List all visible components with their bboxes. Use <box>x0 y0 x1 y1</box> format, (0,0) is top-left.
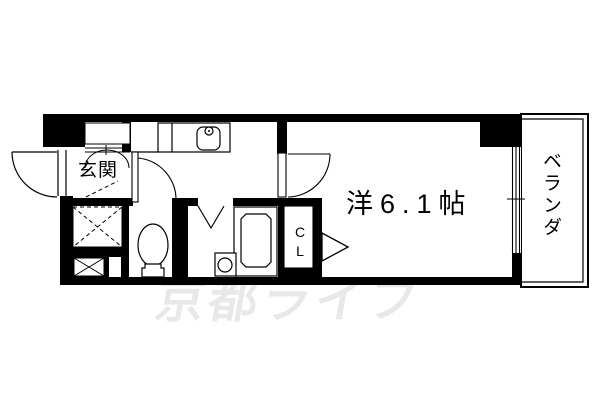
wall-window-pillar <box>512 253 521 285</box>
washbasin-icon <box>215 253 236 276</box>
wall-toilet-left <box>122 198 129 285</box>
veranda-label: ベランダ <box>541 151 560 239</box>
pipe-space-crossed-box-icon <box>74 257 121 277</box>
entrance-step-line <box>86 181 118 197</box>
wall-left <box>60 196 73 285</box>
room-door-swing-icon <box>278 153 330 197</box>
closet-label: CL <box>293 224 307 262</box>
wall-elevator-band <box>73 247 122 257</box>
toilet-door-swing-icon <box>132 152 176 202</box>
entrance-door-swing-icon <box>12 150 66 197</box>
watermark-text: 京都ライフ <box>152 277 426 326</box>
toilet-icon <box>138 224 168 277</box>
wall-room-door-stub <box>277 114 287 154</box>
elevator-shaft-icon <box>73 207 122 247</box>
closet-door-triangle-icon <box>322 233 348 261</box>
kitchen-counter-icon <box>131 123 230 152</box>
bathtub-icon <box>234 207 277 276</box>
wall-block-top-left <box>43 114 85 147</box>
wall-toilet-bath-divider <box>172 198 188 285</box>
entrance-label: 玄関 <box>78 161 118 180</box>
floorplan-canvas: 玄関 洋6.1帖 ベランダ CL 京都ライフ <box>0 0 600 400</box>
wall-block-top-right <box>480 114 521 147</box>
service-slot <box>109 257 121 277</box>
wall-closet-right <box>313 204 322 277</box>
bath-folding-door-icon <box>198 206 224 228</box>
floorplan-drawing <box>0 0 600 400</box>
main-room-label: 洋6.1帖 <box>346 191 473 218</box>
